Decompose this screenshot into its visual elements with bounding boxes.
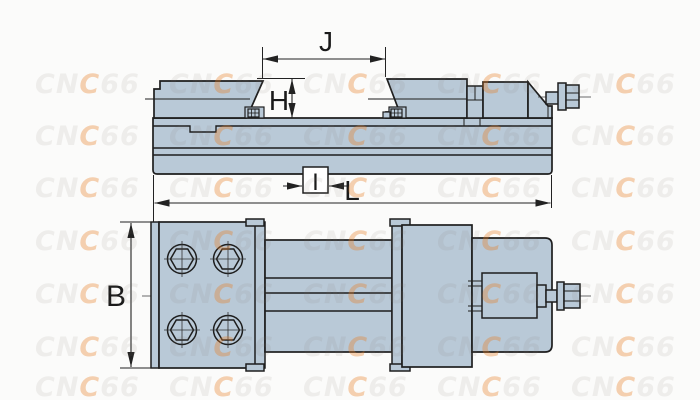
watermark-text: CNC66 (303, 121, 408, 152)
vise-engineering-drawing: J H I L (0, 0, 700, 400)
watermark-text: CNC66 (571, 372, 676, 400)
watermark-text: CNC66 (169, 332, 274, 363)
watermark-text: CNC66 (303, 279, 408, 310)
watermark-text: CNC66 (571, 173, 676, 204)
watermark-text: CNC66 (437, 121, 542, 152)
watermark-text: CNC66 (35, 226, 140, 257)
watermark-text: CNC66 (35, 372, 140, 400)
watermark-text: CNC66 (571, 226, 676, 257)
watermark-text: CNC66 (303, 69, 408, 100)
watermark-text: CNC66 (303, 173, 408, 204)
watermark-text: CNC66 (169, 279, 274, 310)
watermark-text: CNC66 (35, 69, 140, 100)
dimension-label-J: J (319, 26, 333, 57)
insert-step (383, 112, 390, 118)
watermark-text: CNC66 (437, 332, 542, 363)
watermark-text: CNC66 (35, 279, 140, 310)
screw-shaft (546, 290, 557, 302)
fixed-jaw-insert (245, 107, 264, 118)
watermark-text: CNC66 (571, 279, 676, 310)
watermark-text: CNC66 (437, 173, 542, 204)
watermark-text: CNC66 (303, 226, 408, 257)
watermark-text: CNC66 (35, 332, 140, 363)
watermark-text: CNC66 (35, 121, 140, 152)
watermark-text: CNC66 (169, 372, 274, 400)
watermark-text: CNC66 (169, 226, 274, 257)
end-plate (151, 222, 159, 368)
movable-jaw-insert (383, 107, 406, 118)
watermark-text: CNC66 (303, 372, 408, 400)
watermark-text: CNC66 (437, 69, 542, 100)
watermark-text: CNC66 (35, 173, 140, 204)
clamp-tab (246, 364, 264, 371)
vise-engineering-drawing-page: J H I L (0, 0, 700, 400)
watermark-text: CNC66 (437, 372, 542, 400)
watermark-text: CNC66 (437, 279, 542, 310)
watermark-text: CNC66 (437, 226, 542, 257)
watermark-text: CNC66 (169, 173, 274, 204)
watermark-text: CNC66 (169, 121, 274, 152)
watermark-text: CNC66 (571, 332, 676, 363)
watermark-text: CNC66 (571, 121, 676, 152)
screw-collar (558, 83, 566, 110)
watermark-text: CNC66 (303, 332, 408, 363)
watermark-text: CNC66 (169, 69, 274, 100)
clamp-tab (246, 219, 264, 226)
screw-collar (557, 282, 564, 310)
watermark-text: CNC66 (571, 69, 676, 100)
screw-shaft (546, 92, 559, 104)
